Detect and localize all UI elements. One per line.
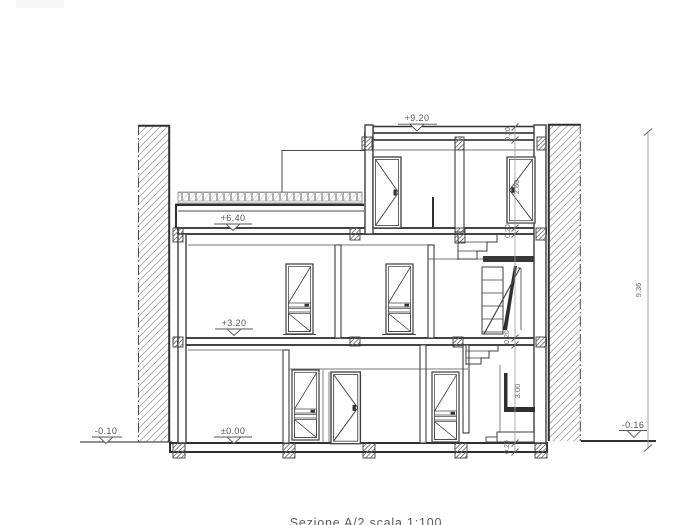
stairs-lower [466,345,535,442]
terrace-roof-finish [175,150,365,228]
dim-first-slab: 0.20 [504,330,511,344]
penthouse-partition-wall [455,140,464,232]
door-penthouse-left [373,157,401,228]
section-drawing: 0.20 2.60 0.20 0.20 3.00 0.20 9.36 +9.20… [0,0,700,525]
window-ground-right [432,372,459,442]
dim-penthouse-height: 2.60 [512,180,521,195]
dim-roof-slab: 0.20 [505,127,512,141]
level-first-label: +3.20 [222,318,247,328]
dim-bottom-slab: 0.20 [504,440,511,454]
level-roof-label: +9.20 [405,113,430,123]
dim-ground-height: 3.00 [513,384,522,399]
level-ground-label: ±0.00 [221,426,245,436]
drawing-sheet: 0.20 2.60 0.20 0.20 3.00 0.20 9.36 +9.20… [0,0,700,525]
level-grade-left-label: -0.10 [95,426,118,436]
level-marker-ground: ±0.00 [214,426,252,444]
ground-floor-partition-1 [283,350,289,443]
window-first-floor-left [286,264,313,334]
level-marker-first: +3.20 [215,318,253,336]
right-boundary-wall [548,124,581,441]
window-first-floor-right [386,264,413,334]
dim-total-height: 9.36 [634,129,652,452]
window-ground-left [292,370,319,440]
toolbar-artifact [16,0,64,8]
stairs-upper [458,234,534,334]
level-marker-grade-left: -0.10 [92,426,122,444]
first-floor-partition-1 [335,245,341,338]
dim-mid-slab: 0.20 [505,224,512,238]
first-floor-slab [178,338,546,345]
level-marker-roof: +9.20 [398,113,437,131]
door-ground-floor [331,372,360,444]
ground-floor-partition-2 [420,345,426,443]
level-second-label: +6.40 [221,213,246,223]
left-boundary-wall [138,125,170,442]
level-marker-grade-right: -0.16 [619,420,647,438]
exterior-wall-right [534,125,546,443]
dim-total-height-label: 9.36 [634,283,643,298]
drawing-caption: Sezione A/2 scala 1:100 [290,516,443,525]
level-grade-right-label: -0.16 [622,420,645,430]
